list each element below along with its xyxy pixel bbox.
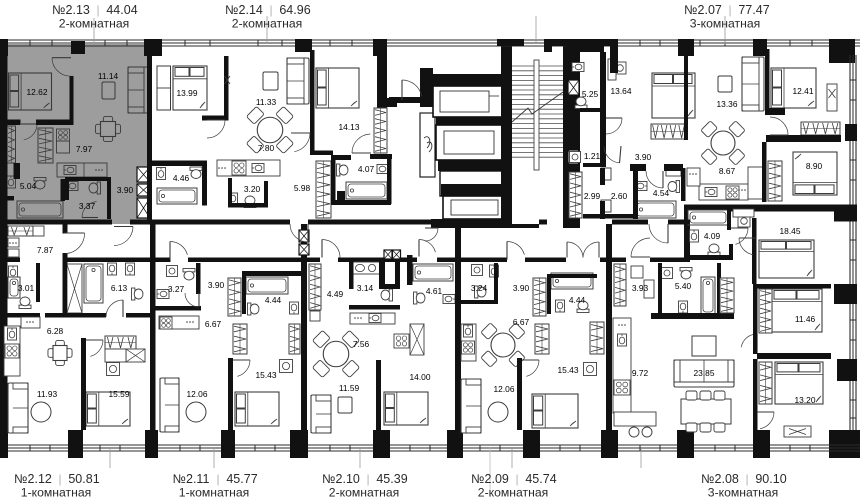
svg-text:№2.12: №2.12	[14, 472, 52, 486]
svg-text:7.97: 7.97	[76, 144, 93, 154]
svg-text:4.49: 4.49	[327, 289, 344, 299]
svg-text:9.72: 9.72	[632, 368, 649, 378]
svg-text:3.01: 3.01	[18, 283, 35, 293]
svg-text:7.56: 7.56	[353, 339, 370, 349]
svg-text:4.61: 4.61	[426, 286, 443, 296]
svg-text:77.47: 77.47	[738, 3, 769, 17]
svg-text:3.14: 3.14	[357, 283, 374, 293]
svg-text:8.90: 8.90	[806, 161, 823, 171]
svg-text:14.00: 14.00	[410, 372, 431, 382]
svg-text:№2.09: №2.09	[471, 472, 509, 486]
svg-text:1-комнатная: 1-комнатная	[179, 486, 249, 500]
svg-text:3-комнатная: 3-комнатная	[708, 486, 778, 500]
svg-text:3.93: 3.93	[632, 283, 649, 293]
svg-text:11.59: 11.59	[339, 383, 360, 393]
svg-text:12.41: 12.41	[793, 86, 814, 96]
svg-text:13.36: 13.36	[717, 99, 738, 109]
svg-text:|: |	[728, 3, 731, 17]
svg-text:6.28: 6.28	[47, 326, 64, 336]
svg-text:64.96: 64.96	[279, 3, 310, 17]
svg-text:23.85: 23.85	[694, 368, 715, 378]
svg-text:|: |	[745, 472, 748, 486]
svg-text:44.04: 44.04	[106, 3, 137, 17]
svg-text:12.62: 12.62	[27, 87, 48, 97]
svg-text:2-комнатная: 2-комнатная	[232, 17, 302, 31]
svg-text:3.90: 3.90	[208, 280, 225, 290]
svg-text:3-комнатная: 3-комнатная	[690, 17, 760, 31]
svg-text:45.74: 45.74	[525, 472, 556, 486]
svg-text:11.93: 11.93	[37, 389, 58, 399]
svg-text:18.45: 18.45	[780, 226, 801, 236]
svg-text:3.37: 3.37	[79, 201, 96, 211]
svg-text:7.80: 7.80	[258, 143, 275, 153]
svg-text:12.06: 12.06	[187, 389, 208, 399]
svg-text:1-комнатная: 1-комнатная	[21, 486, 91, 500]
svg-text:45.77: 45.77	[226, 472, 257, 486]
svg-text:6.67: 6.67	[205, 319, 222, 329]
svg-text:3.90: 3.90	[635, 152, 652, 162]
svg-text:|: |	[216, 472, 219, 486]
svg-text:7.87: 7.87	[37, 245, 54, 255]
svg-text:№2.10: №2.10	[322, 472, 360, 486]
svg-text:13.20: 13.20	[795, 395, 816, 405]
svg-text:3.90: 3.90	[117, 185, 134, 195]
svg-text:11.33: 11.33	[256, 97, 277, 107]
svg-text:15.43: 15.43	[558, 365, 579, 375]
svg-text:2.60: 2.60	[611, 191, 628, 201]
svg-text:№2.07: №2.07	[684, 3, 722, 17]
svg-text:4.46: 4.46	[173, 173, 190, 183]
svg-text:3.20: 3.20	[244, 184, 261, 194]
svg-text:90.10: 90.10	[755, 472, 786, 486]
svg-text:14.13: 14.13	[339, 122, 360, 132]
svg-text:15.43: 15.43	[256, 370, 277, 380]
svg-text:|: |	[96, 3, 99, 17]
svg-text:6.67: 6.67	[513, 317, 530, 327]
svg-text:3.27: 3.27	[168, 284, 185, 294]
svg-text:45.39: 45.39	[376, 472, 407, 486]
svg-text:5.98: 5.98	[294, 183, 311, 193]
svg-text:|: |	[58, 472, 61, 486]
svg-text:№2.11: №2.11	[173, 472, 210, 486]
svg-text:|: |	[269, 3, 272, 17]
svg-text:|: |	[366, 472, 369, 486]
svg-text:6.13: 6.13	[111, 283, 128, 293]
svg-text:4.09: 4.09	[704, 231, 721, 241]
svg-text:5.04: 5.04	[20, 181, 37, 191]
svg-text:4.54: 4.54	[653, 188, 670, 198]
svg-text:50.81: 50.81	[68, 472, 99, 486]
svg-text:3.24: 3.24	[471, 283, 488, 293]
svg-text:5.40: 5.40	[675, 281, 692, 291]
svg-text:1.21: 1.21	[584, 151, 601, 161]
svg-text:15.59: 15.59	[109, 389, 130, 399]
svg-text:2-комнатная: 2-комнатная	[478, 486, 548, 500]
svg-text:2.99: 2.99	[584, 191, 601, 201]
svg-text:|: |	[515, 472, 518, 486]
svg-text:12.06: 12.06	[494, 384, 515, 394]
svg-text:8.67: 8.67	[719, 166, 736, 176]
svg-text:2-комнатная: 2-комнатная	[59, 17, 129, 31]
svg-text:13.64: 13.64	[611, 86, 632, 96]
svg-text:№2.08: №2.08	[701, 472, 739, 486]
svg-text:№2.14: №2.14	[225, 3, 263, 17]
svg-text:13.99: 13.99	[177, 88, 198, 98]
svg-text:2-комнатная: 2-комнатная	[329, 486, 399, 500]
svg-text:4.44: 4.44	[265, 295, 282, 305]
svg-text:№2.13: №2.13	[52, 3, 90, 17]
svg-text:3.90: 3.90	[513, 283, 530, 293]
svg-text:4.07: 4.07	[358, 164, 375, 174]
svg-text:5.25: 5.25	[582, 89, 599, 99]
svg-text:11.46: 11.46	[795, 314, 816, 324]
svg-text:4.44: 4.44	[569, 295, 586, 305]
svg-text:11.14: 11.14	[98, 71, 119, 81]
